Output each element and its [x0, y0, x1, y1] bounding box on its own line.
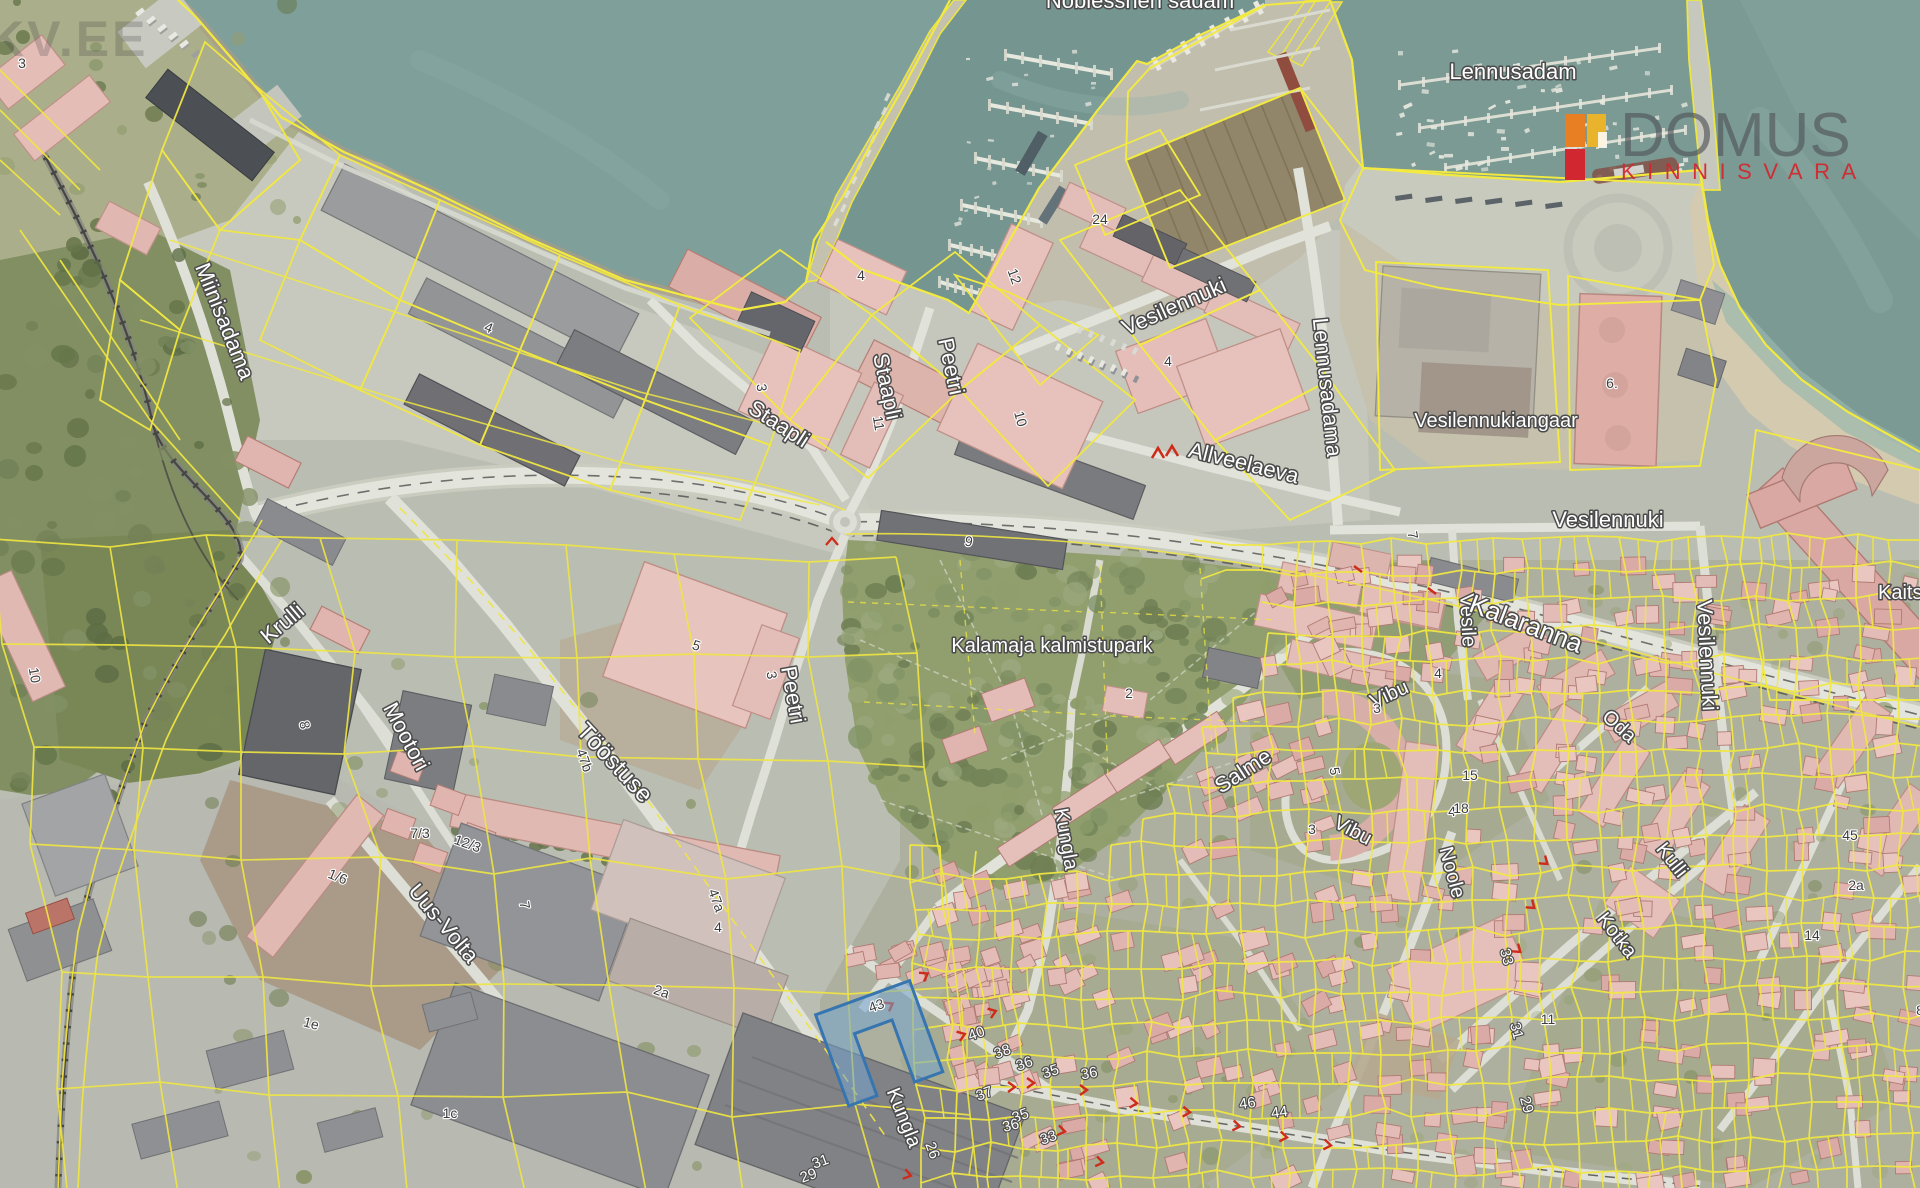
- svg-text:6.: 6.: [1606, 375, 1618, 391]
- svg-text:10: 10: [26, 666, 44, 684]
- svg-text:Vesilennuki: Vesilennuki: [1552, 507, 1663, 532]
- svg-text:KINNISVARA: KINNISVARA: [1621, 159, 1868, 184]
- svg-text:1c: 1c: [443, 1105, 458, 1121]
- svg-text:11: 11: [1541, 1011, 1556, 1027]
- svg-text:4: 4: [1164, 353, 1172, 369]
- svg-text:4: 4: [1434, 665, 1442, 681]
- svg-text:3: 3: [1308, 821, 1316, 837]
- svg-text:3: 3: [1373, 700, 1381, 716]
- svg-text:Kaitsekasa: Kaitsekasa: [1878, 582, 1920, 604]
- svg-text:Lennusadam: Lennusadam: [1449, 59, 1576, 84]
- svg-text:Kalamaja kalmistupark: Kalamaja kalmistupark: [951, 635, 1153, 657]
- svg-text:8: 8: [1916, 1002, 1920, 1018]
- svg-text:24: 24: [1092, 211, 1108, 227]
- svg-text:2a: 2a: [1848, 877, 1864, 893]
- svg-text:46: 46: [1238, 1094, 1257, 1113]
- svg-text:2: 2: [1125, 685, 1133, 701]
- svg-text:3: 3: [754, 383, 771, 392]
- svg-text:14: 14: [1804, 927, 1820, 943]
- svg-text:36: 36: [1080, 1064, 1099, 1084]
- svg-text:11: 11: [870, 415, 888, 432]
- svg-text:4: 4: [857, 267, 865, 283]
- svg-text:15: 15: [1462, 767, 1478, 783]
- svg-text:Vesilennukiangaar: Vesilennukiangaar: [1414, 410, 1578, 432]
- svg-text:45: 45: [1842, 827, 1858, 843]
- svg-text:4: 4: [714, 919, 722, 935]
- svg-text:18: 18: [1453, 800, 1469, 816]
- svg-text:Noblessneri sadam: Noblessneri sadam: [1046, 0, 1234, 13]
- svg-text:44: 44: [1270, 1103, 1289, 1122]
- svg-text:KV.EE: KV.EE: [0, 11, 148, 67]
- svg-text:7/3: 7/3: [410, 825, 430, 841]
